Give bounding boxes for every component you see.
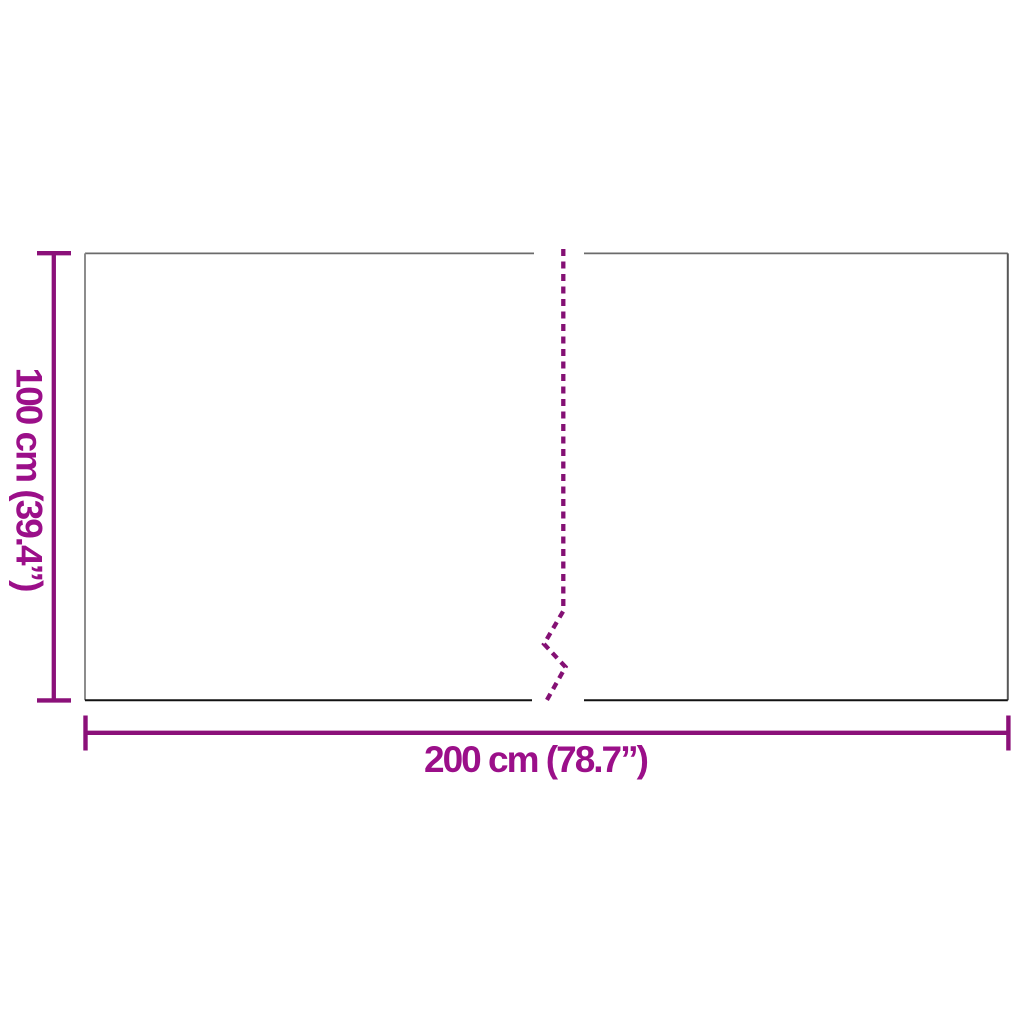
svg-text:100 cm (39.4”): 100 cm (39.4”)	[9, 368, 50, 592]
svg-text:200 cm (78.7”): 200 cm (78.7”)	[424, 739, 648, 780]
